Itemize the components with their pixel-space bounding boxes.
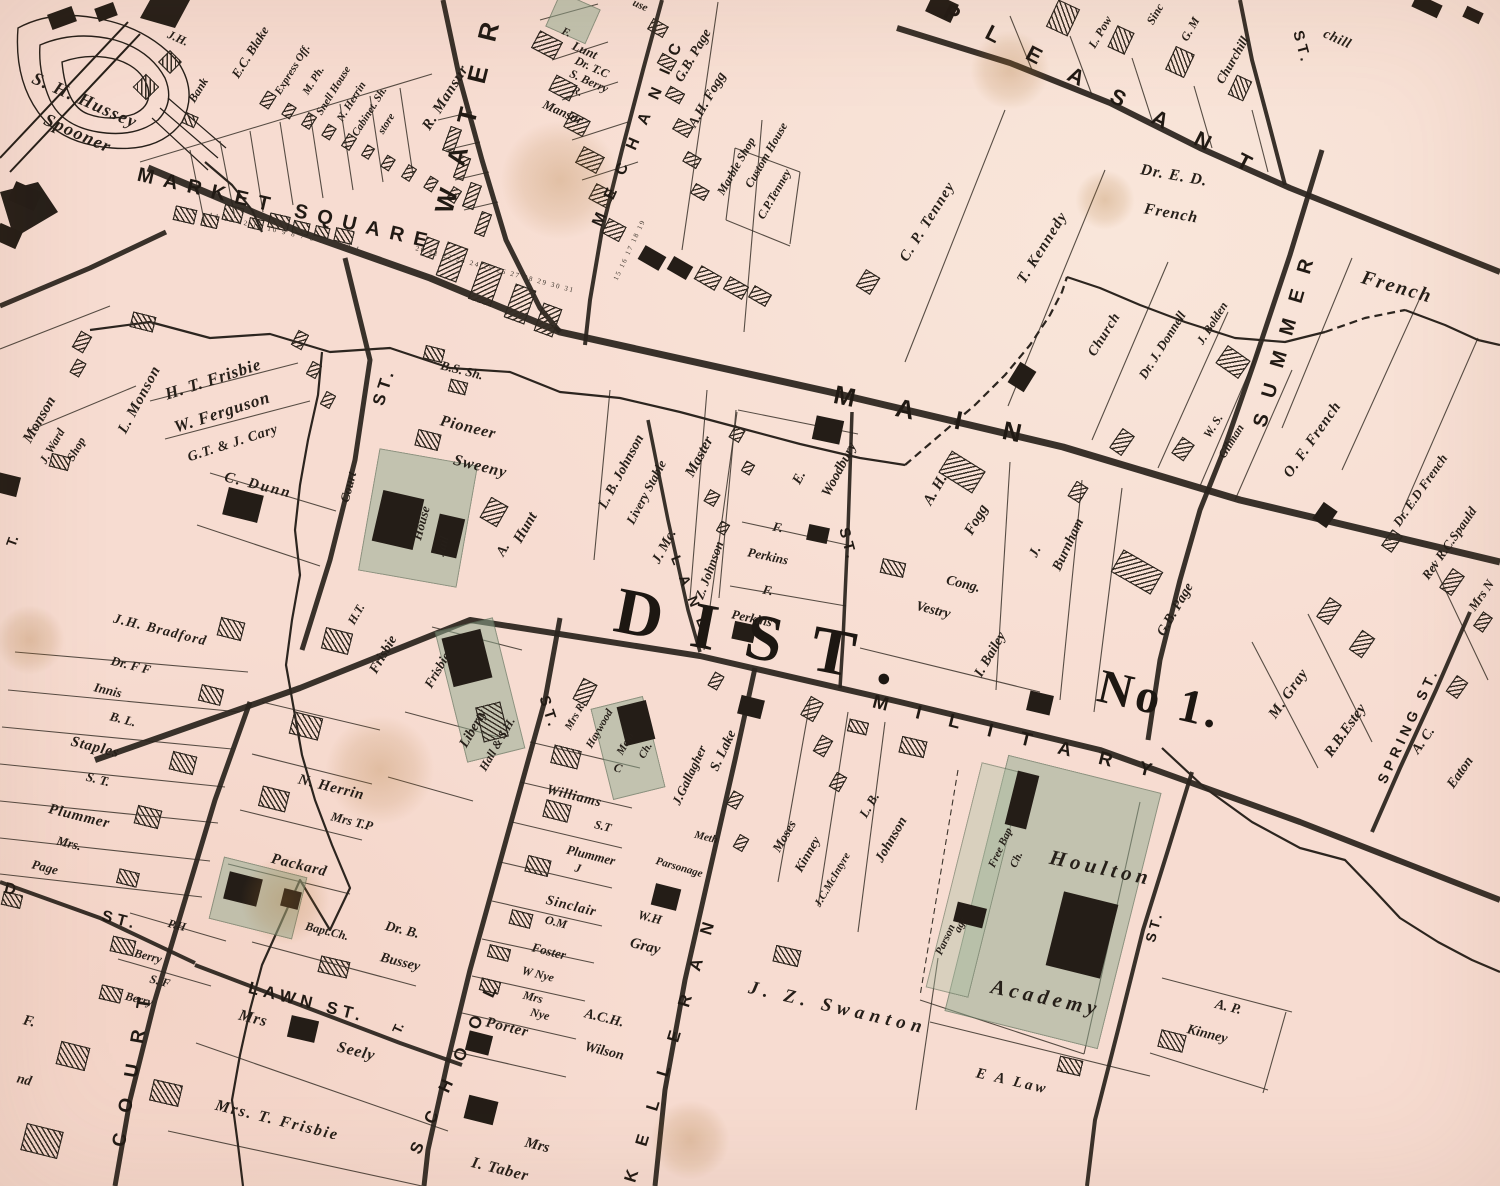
shore-block (140, 0, 190, 28)
lot-line (790, 172, 800, 244)
road (302, 258, 370, 650)
lot-line (500, 862, 612, 888)
lot-line (594, 390, 610, 560)
lot-line (858, 722, 885, 932)
stream (1405, 310, 1500, 345)
paper-stain (1075, 170, 1135, 230)
lot-line (400, 88, 413, 175)
lot-line (310, 113, 323, 198)
road (0, 232, 166, 306)
owner-label: P.H (167, 917, 187, 933)
lot-line (0, 838, 210, 861)
owner-label: S.T (593, 818, 612, 834)
paper-stain (650, 1100, 730, 1180)
lot-line (197, 525, 320, 566)
road (0, 882, 195, 963)
paper-stain (325, 715, 435, 825)
lot-line (168, 1131, 422, 1186)
road (1372, 612, 1470, 832)
lot-line (1263, 1012, 1286, 1093)
lot-line (726, 220, 790, 246)
stream (1325, 310, 1405, 332)
lot-line (1342, 298, 1420, 470)
map-canvas: MARKET SQUAREWATERMECHANICMAINPLEASANTST… (0, 0, 1500, 1186)
lot-line (0, 306, 110, 349)
lot-line (280, 122, 293, 205)
lot-line (1150, 1053, 1268, 1090)
lot-line (1060, 480, 1082, 700)
